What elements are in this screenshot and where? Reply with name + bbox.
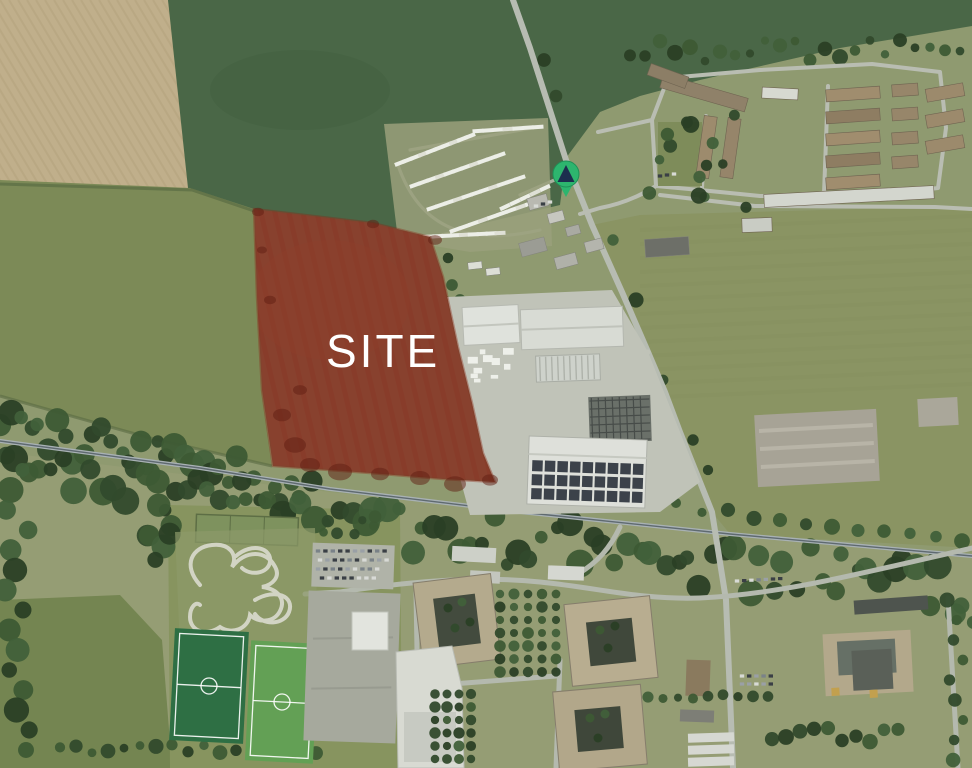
quad-building-2	[564, 596, 658, 687]
football-pitch-dark	[169, 628, 249, 744]
aerial-map: SITE	[0, 0, 972, 768]
site-label: SITE	[326, 325, 440, 377]
solar-warehouse	[527, 436, 647, 508]
aerial-map-canvas: SITE	[0, 0, 972, 768]
sports-building	[352, 612, 388, 650]
quad-building-3	[553, 684, 648, 768]
hardstanding	[754, 409, 880, 487]
campus-right-complex	[822, 630, 913, 701]
